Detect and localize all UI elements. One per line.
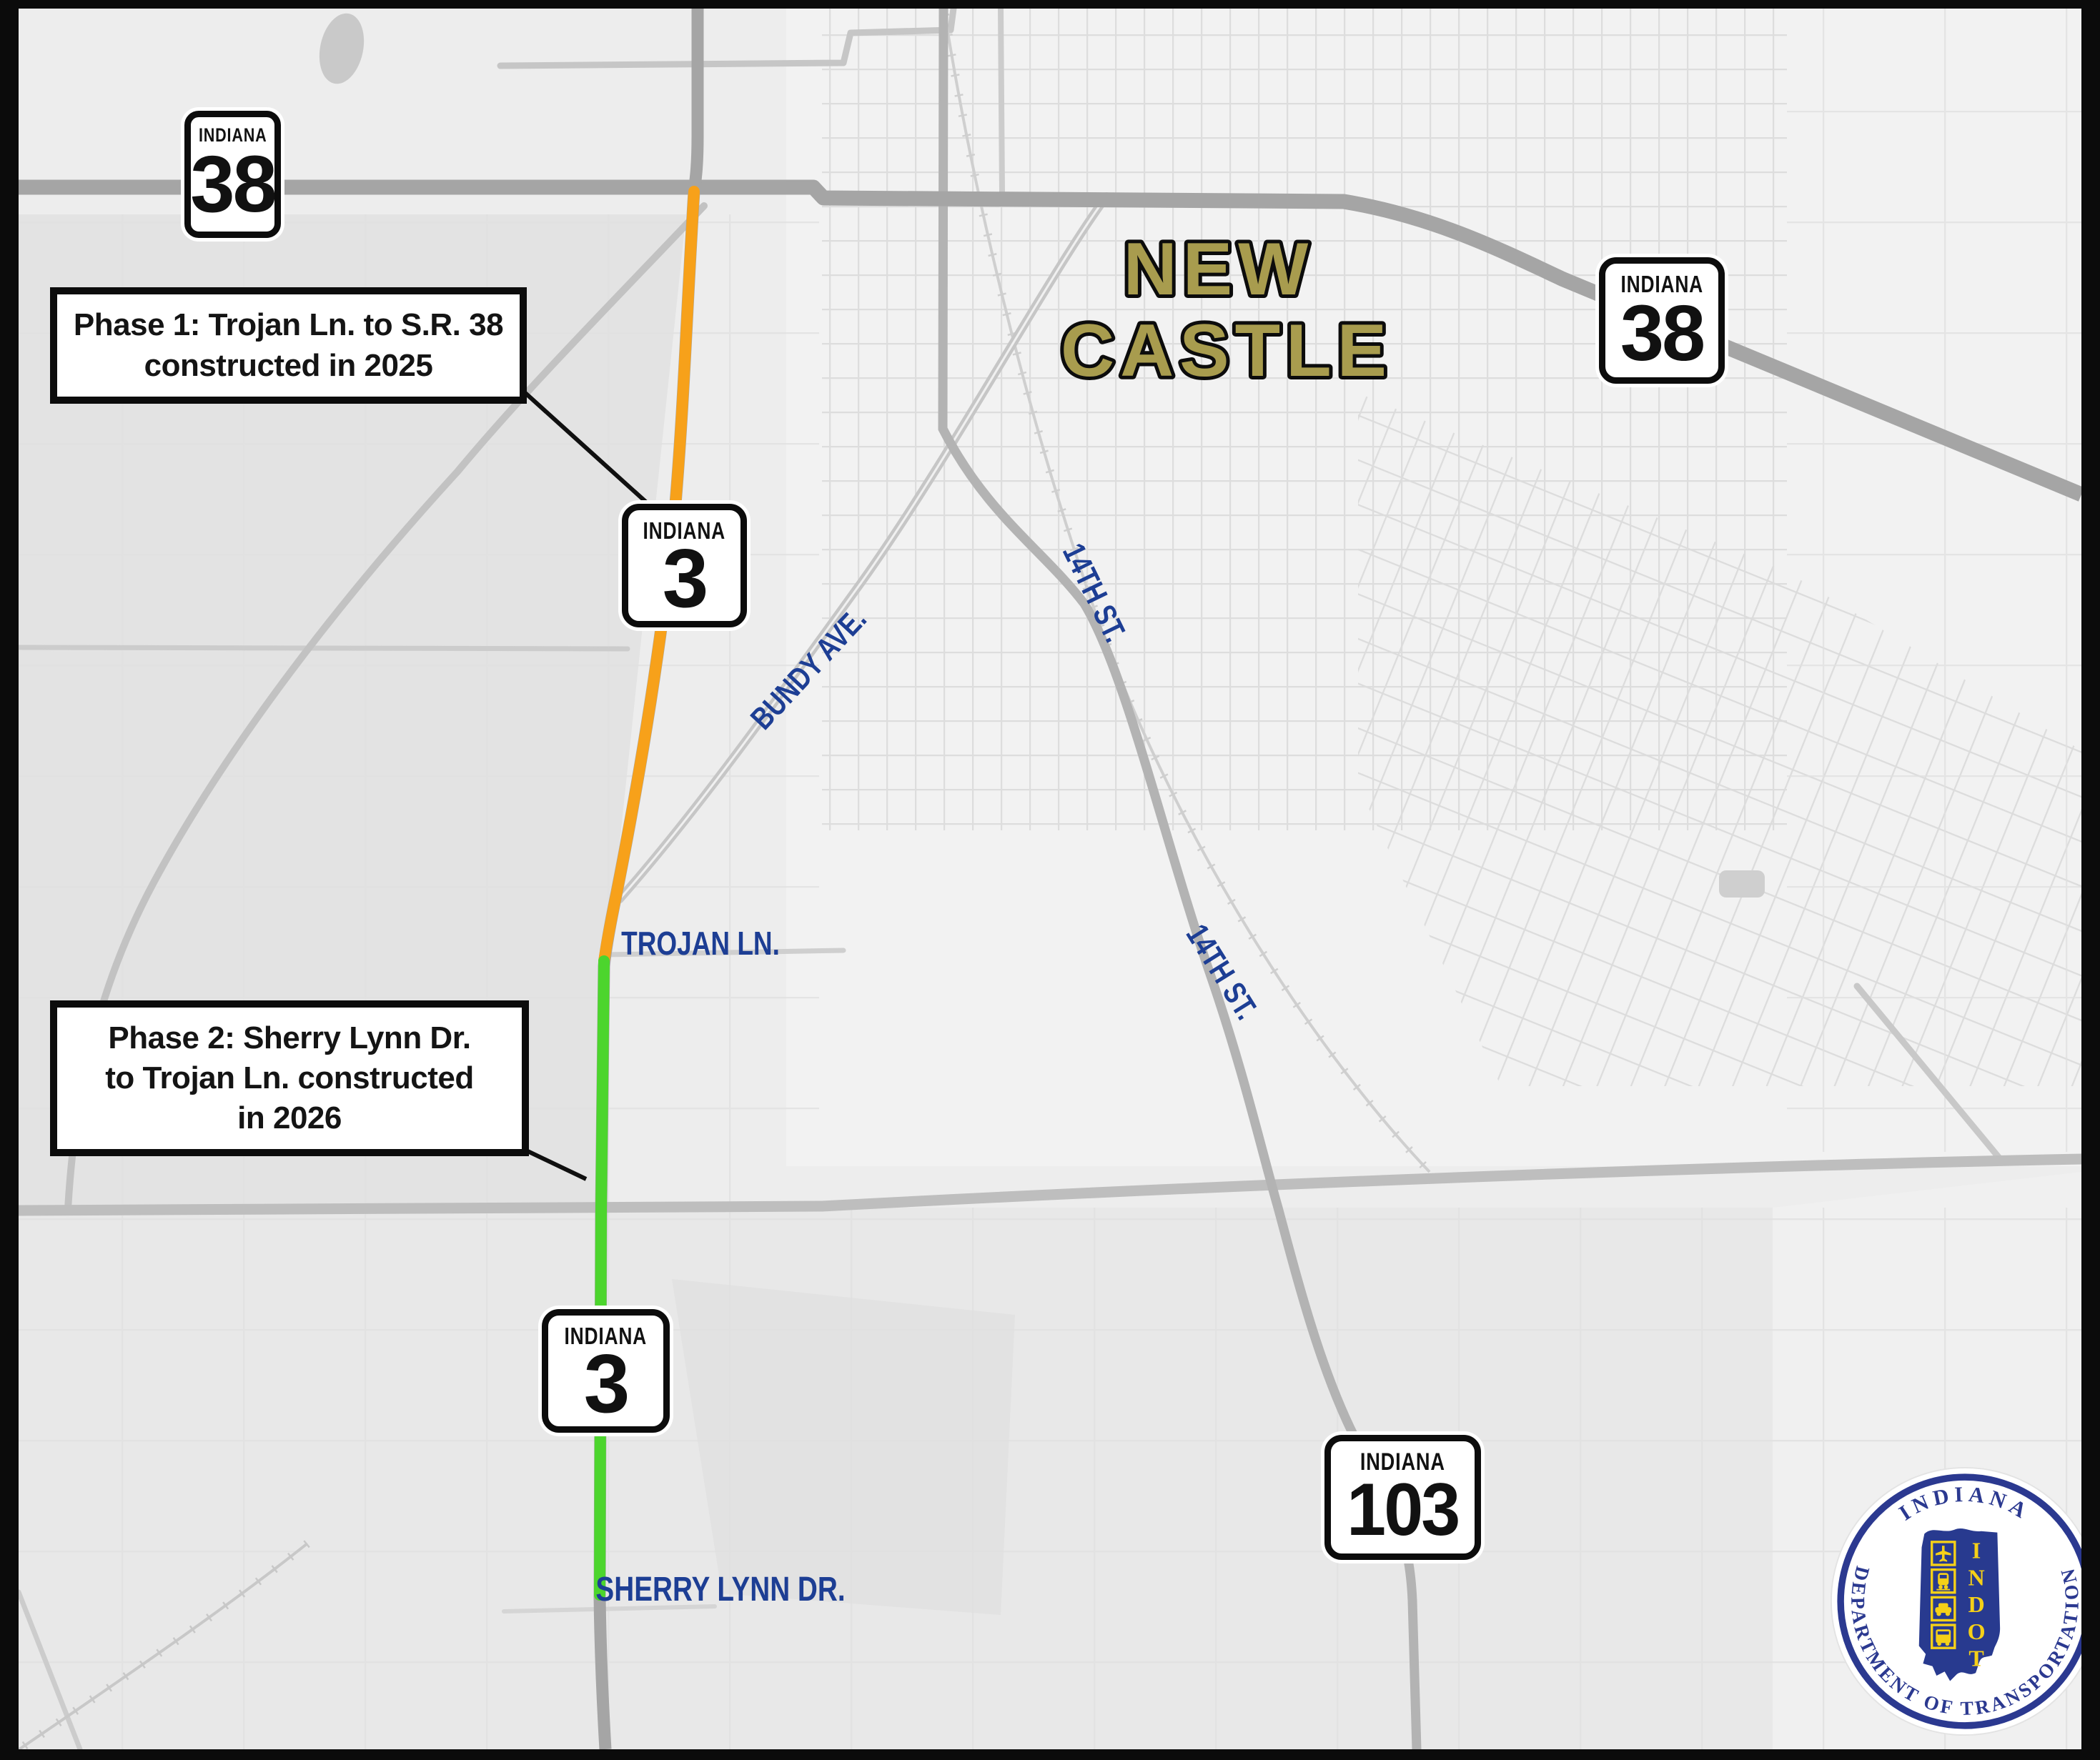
indot-logo: INDIANA DEPARTMENT OF TRANSPORTATION <box>1830 1466 2081 1736</box>
phase2-text-line2: to Trojan Ln. constructed <box>105 1058 474 1098</box>
indot-letter: I <box>1972 1538 1981 1563</box>
city-label-castle: CASTLE <box>1061 309 1392 392</box>
indot-project-map: NEW CASTLE BUNDY AVE. 14TH ST. 14TH ST. … <box>0 0 2100 1760</box>
shield-sr3-south: INDIANA 3 <box>542 1309 670 1433</box>
shield-state-label: INDIANA <box>1620 272 1703 296</box>
route-phase2-green <box>600 961 604 1595</box>
indot-letter: O <box>1968 1619 1986 1644</box>
shield-route-number: 38 <box>190 138 275 232</box>
shield-sr38-east: INDIANA 38 <box>1599 257 1725 384</box>
shield-route-number: 103 <box>1347 1467 1458 1553</box>
indot-letter: D <box>1968 1591 1984 1617</box>
shield-sr38-west: INDIANA 38 <box>184 111 281 238</box>
indot-letter: N <box>1968 1564 1984 1590</box>
south-street-grid <box>19 1208 2081 1749</box>
phase1-callout: Phase 1: Trojan Ln. to S.R. 38 construct… <box>50 287 527 404</box>
map-area: NEW CASTLE BUNDY AVE. 14TH ST. 14TH ST. … <box>19 9 2081 1749</box>
shield-state-label: INDIANA <box>199 126 267 145</box>
indot-letter: T <box>1968 1646 1983 1671</box>
east-street-grid <box>1787 9 2081 1152</box>
shield-sr3-north: INDIANA 3 <box>622 504 747 627</box>
shield-sr103: INDIANA 103 <box>1324 1435 1481 1560</box>
train-icon <box>1936 1573 1950 1591</box>
street-label-trojan-ln: TROJAN LN. <box>621 925 780 962</box>
city-label-new: NEW <box>1124 228 1314 311</box>
pond-east <box>1719 870 1765 898</box>
phase1-text-line2: constructed in 2025 <box>144 346 433 386</box>
shield-state-label: INDIANA <box>565 1324 648 1348</box>
shield-route-number: 3 <box>584 1341 628 1426</box>
road-city-vertical <box>943 9 943 429</box>
phase2-callout: Phase 2: Sherry Lynn Dr. to Trojan Ln. c… <box>50 1000 529 1156</box>
phase2-text-line1: Phase 2: Sherry Lynn Dr. <box>108 1018 470 1058</box>
shield-route-number: 38 <box>1620 289 1703 377</box>
phase1-text-line1: Phase 1: Trojan Ln. to S.R. 38 <box>74 305 503 345</box>
phase2-text-line3: in 2026 <box>237 1098 342 1138</box>
street-label-sherry-lynn-dr: SHERRY LYNN DR. <box>595 1570 845 1609</box>
map-canvas: NEW CASTLE BUNDY AVE. 14TH ST. 14TH ST. … <box>19 9 2081 1749</box>
shield-route-number: 3 <box>663 535 707 621</box>
shield-state-label: INDIANA <box>643 519 726 542</box>
